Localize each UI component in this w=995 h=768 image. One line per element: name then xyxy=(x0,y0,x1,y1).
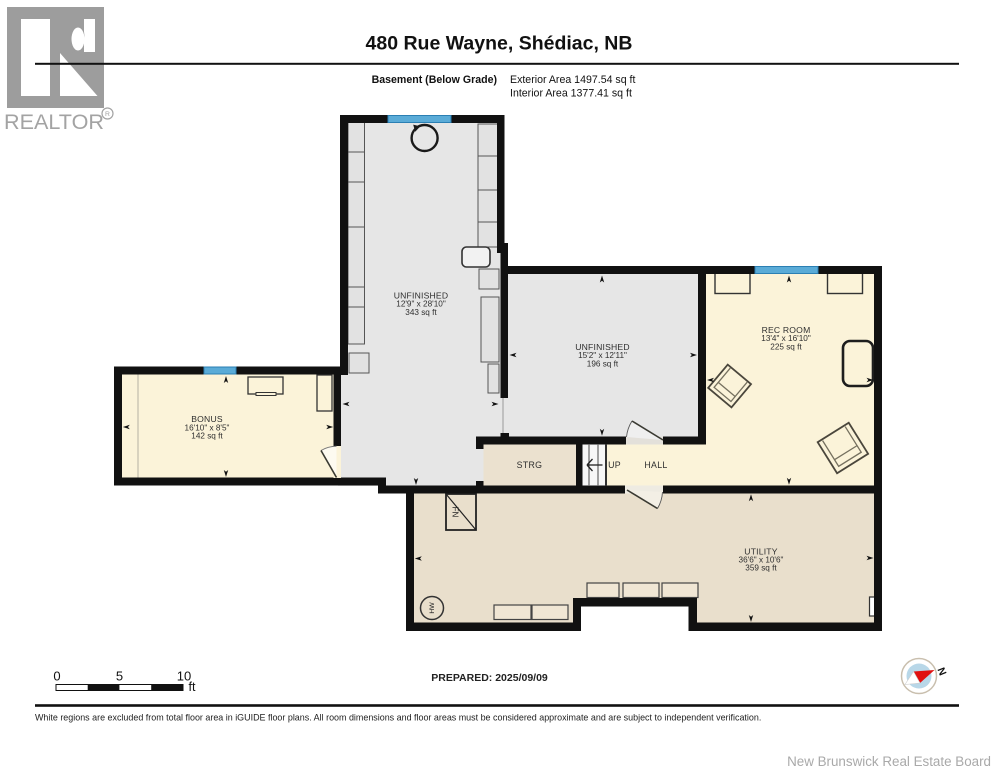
svg-text:142 sq ft: 142 sq ft xyxy=(191,432,223,441)
svg-text:HALL: HALL xyxy=(644,460,667,470)
svg-text:STRG: STRG xyxy=(517,460,543,470)
svg-text:343 sq ft: 343 sq ft xyxy=(405,308,437,317)
svg-text:Basement (Below Grade): Basement (Below Grade) xyxy=(372,74,497,86)
svg-text:R: R xyxy=(105,111,110,118)
svg-text:5: 5 xyxy=(116,669,123,684)
svg-text:FN: FN xyxy=(451,507,460,518)
svg-text:196 sq ft: 196 sq ft xyxy=(587,359,619,368)
svg-text:HW: HW xyxy=(429,602,436,614)
svg-text:ft: ft xyxy=(189,680,196,694)
svg-text:Exterior Area 1497.54 sq ft: Exterior Area 1497.54 sq ft xyxy=(510,74,635,86)
svg-text:359 sq ft: 359 sq ft xyxy=(745,564,777,573)
svg-text:New Brunswick Real Estate Boar: New Brunswick Real Estate Board xyxy=(787,754,991,768)
svg-text:White regions are excluded fro: White regions are excluded from total fl… xyxy=(35,713,761,723)
svg-text:PREPARED: 2025/09/09: PREPARED: 2025/09/09 xyxy=(431,672,548,684)
svg-text:UP: UP xyxy=(608,460,621,470)
svg-text:Interior Area 1377.41 sq ft: Interior Area 1377.41 sq ft xyxy=(510,88,632,100)
svg-text:REALTOR: REALTOR xyxy=(4,110,104,134)
svg-text:0: 0 xyxy=(53,669,60,684)
svg-text:225 sq ft: 225 sq ft xyxy=(770,342,802,351)
svg-text:480 Rue Wayne, Shédiac, NB: 480 Rue Wayne, Shédiac, NB xyxy=(366,33,633,55)
